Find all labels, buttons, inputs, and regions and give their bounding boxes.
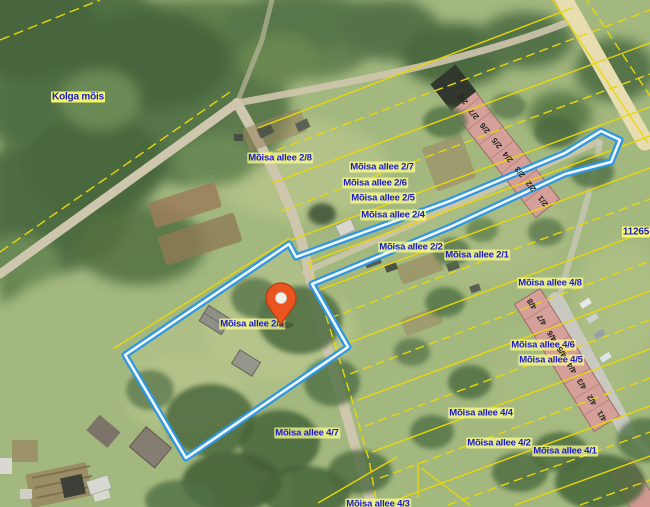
- map-canvas[interactable]: Kolga mõisMõisa allee 2/8Mõisa allee 2/7…: [0, 0, 650, 507]
- satellite-layer: [0, 0, 650, 507]
- location-pin-icon[interactable]: [262, 279, 300, 329]
